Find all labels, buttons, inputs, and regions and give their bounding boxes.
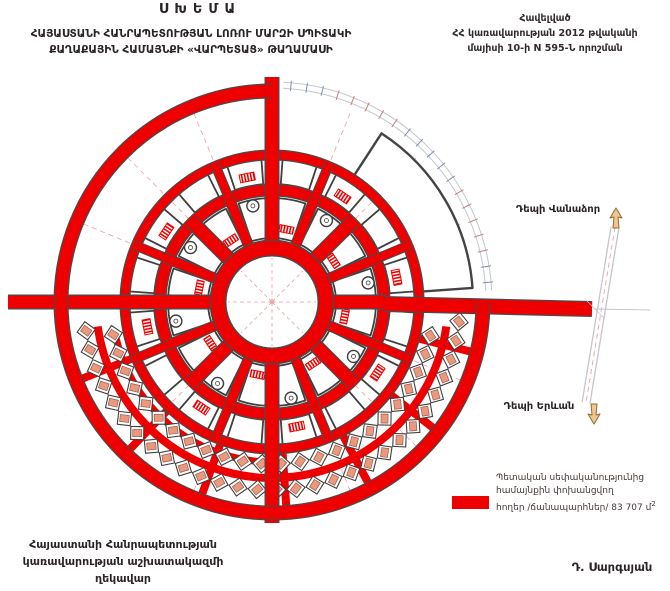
label-to-vanadzor: Դեպի Վանաձոր [506, 204, 610, 215]
signer-name: Դ. Սարգսյան [556, 560, 668, 574]
up-direction-arrow-icon [610, 208, 622, 228]
legend-line-3: հողեր /ճանապարհներ/ 83 707 մ2 [496, 498, 666, 515]
footer-line-3: ղեկավար [8, 570, 238, 587]
footer-line-2: կառավարության աշխատակազմի [8, 553, 238, 570]
legend: Պետական սեփականությունից համայնքին փոխան… [448, 472, 666, 515]
legend-line-2: համայնքին փոխանցվող [496, 485, 666, 498]
footer-line-1: Հայաստանի Հանրապետության [8, 536, 238, 553]
footer-signature-block: Հայաստանի Հանրապետության կառավարության ա… [8, 536, 238, 587]
scheme-page: { "header": { "title": "ՍԽԵՄԱ", "subtitl… [0, 0, 670, 591]
legend-line-1: Պետական սեփականությունից [496, 472, 666, 485]
legend-text: Պետական սեփականությունից համայնքին փոխան… [496, 472, 666, 515]
down-direction-arrow-icon [588, 404, 600, 424]
label-to-yerevan: Դեպի Երևան [492, 401, 586, 412]
legend-swatch [452, 496, 489, 509]
central-plaza [218, 248, 326, 356]
bypass-road [582, 226, 650, 403]
